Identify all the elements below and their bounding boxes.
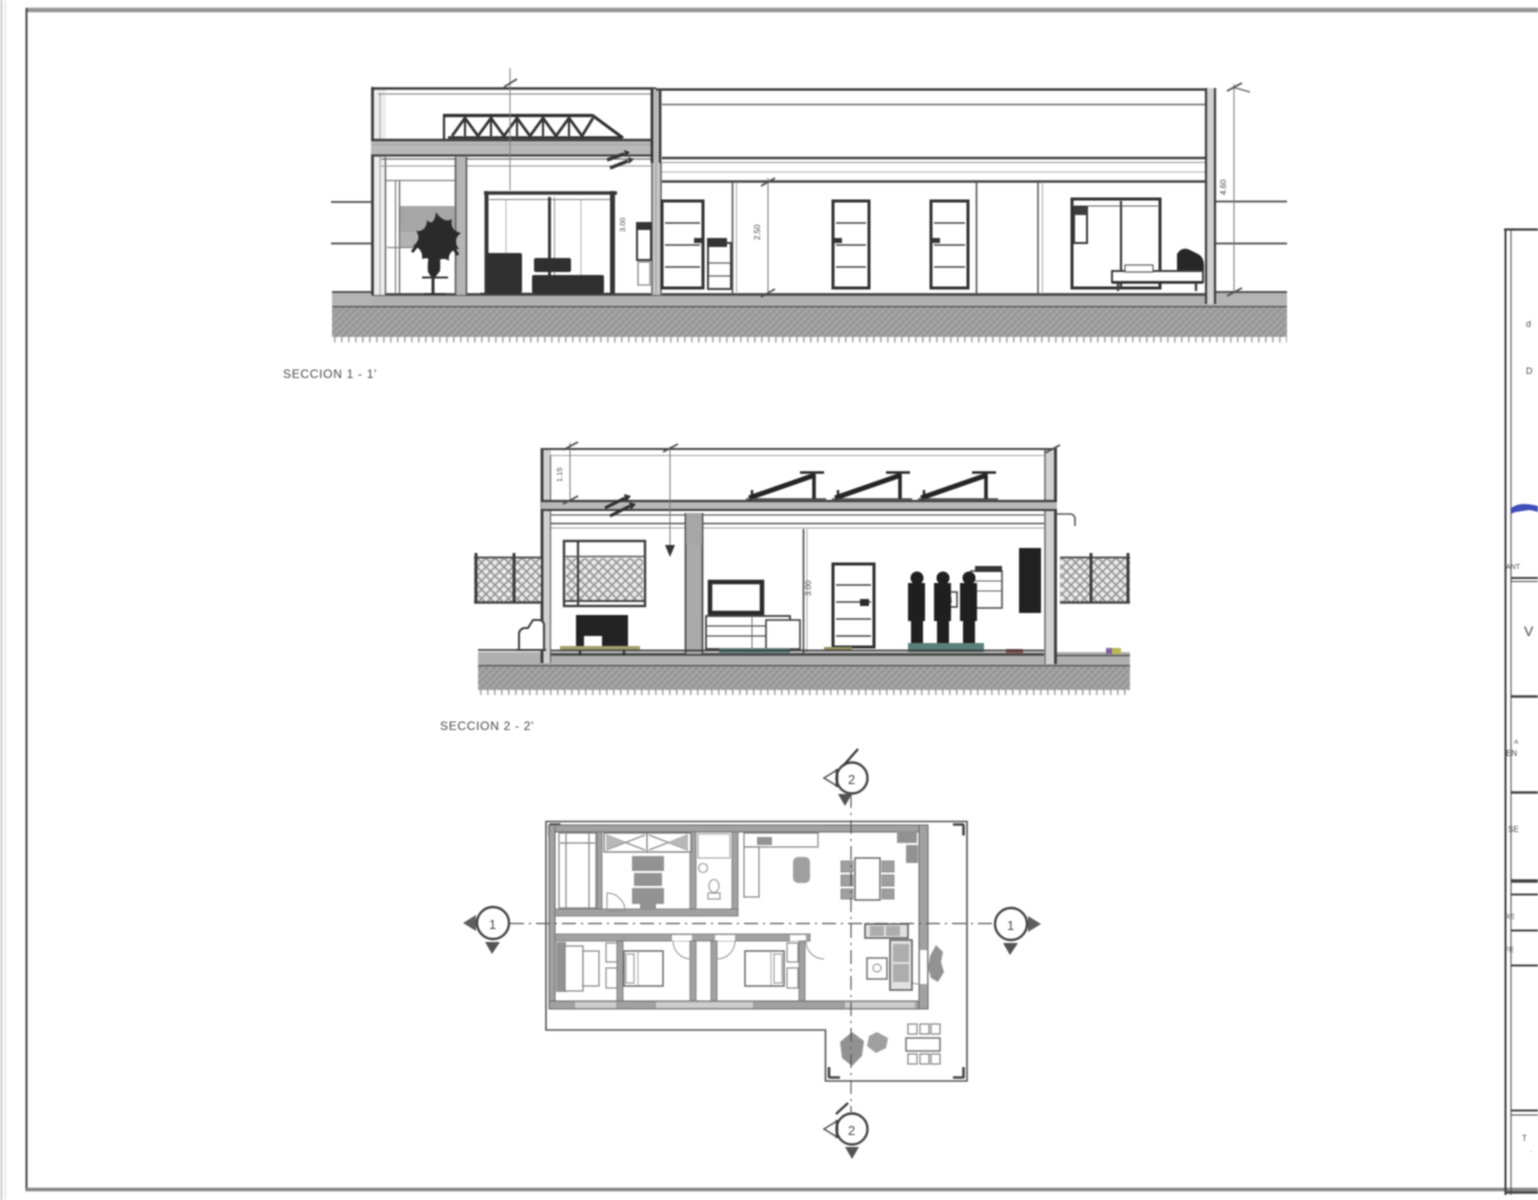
svg-text:1: 1: [1007, 918, 1014, 933]
svg-text:2: 2: [848, 1123, 855, 1138]
svg-text:SE: SE: [1508, 825, 1519, 834]
svg-text:1: 1: [489, 917, 496, 932]
svg-text:SECCION 2 - 2': SECCION 2 - 2': [440, 719, 534, 733]
svg-text:V: V: [1524, 623, 1534, 639]
svg-text:T: T: [1522, 1134, 1527, 1143]
svg-text:ANT: ANT: [1506, 564, 1521, 571]
svg-text:SECCION 1 - 1': SECCION 1 - 1': [283, 367, 377, 381]
svg-text:D: D: [1526, 366, 1533, 376]
svg-text:3.00: 3.00: [618, 217, 627, 232]
svg-text:1.15: 1.15: [555, 467, 564, 482]
svg-text:3.00: 3.00: [804, 580, 813, 596]
svg-text:.: .: [1530, 1147, 1532, 1154]
svg-text:2: 2: [848, 772, 855, 787]
svg-text:RE: RE: [1505, 914, 1515, 921]
svg-text:d: d: [1526, 319, 1531, 329]
svg-text:FE: FE: [1505, 947, 1514, 954]
svg-text:EN: EN: [1506, 749, 1517, 758]
svg-text:4.60: 4.60: [1219, 179, 1228, 195]
svg-text:A: A: [1514, 739, 1519, 746]
svg-text:2.50: 2.50: [753, 224, 762, 240]
